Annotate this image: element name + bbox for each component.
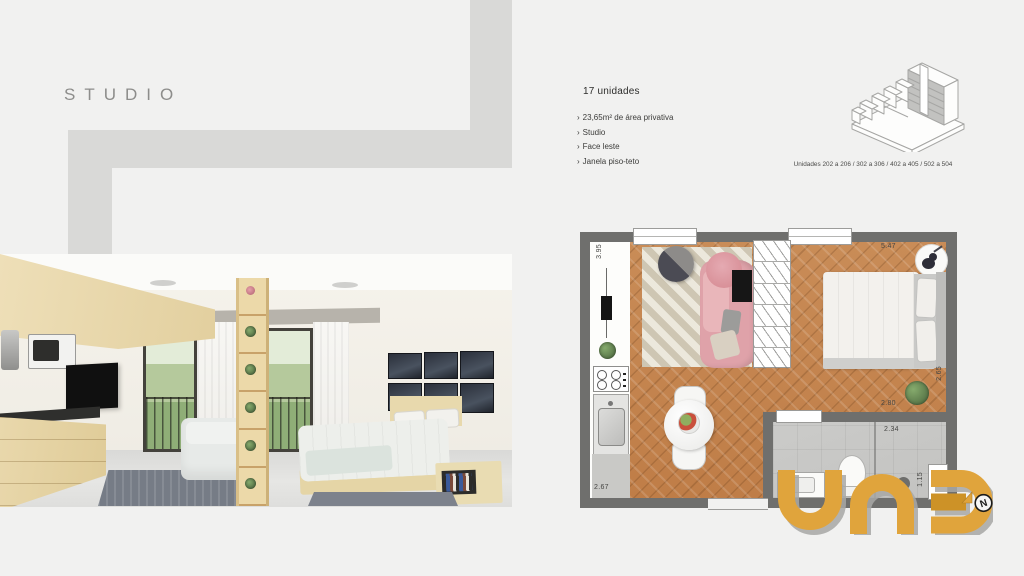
feature-list: ›23,65m² de área privativa ›Studio ›Face… bbox=[577, 114, 797, 166]
dim-bedroom-bottom: 2.80 bbox=[881, 400, 896, 407]
shelf-plant bbox=[245, 364, 256, 375]
coffee-maker bbox=[1, 330, 19, 370]
page-title: STUDIO bbox=[64, 85, 182, 105]
shelf-plant bbox=[245, 326, 256, 337]
bullet: › bbox=[577, 142, 580, 151]
bullet: › bbox=[577, 157, 580, 166]
shelf-plant bbox=[245, 478, 256, 489]
round-pouf bbox=[658, 246, 694, 282]
feature-item: ›Studio bbox=[577, 129, 797, 137]
north-compass: N bbox=[961, 489, 995, 516]
plan-pillow bbox=[915, 277, 938, 318]
guitar bbox=[929, 253, 937, 261]
wall-art bbox=[460, 351, 494, 379]
closet-section bbox=[754, 262, 790, 284]
decorative-band-horizontal bbox=[68, 130, 512, 168]
kitchen-plant bbox=[599, 342, 616, 359]
wall-art bbox=[388, 353, 422, 379]
tv bbox=[66, 363, 118, 411]
guitar-neck bbox=[933, 245, 942, 252]
cooktop bbox=[593, 366, 629, 392]
plan-window bbox=[788, 228, 852, 245]
ceiling-light bbox=[332, 282, 358, 288]
wall-tv bbox=[601, 296, 612, 320]
plan-pillow bbox=[915, 319, 938, 362]
entry-door-opening bbox=[708, 498, 768, 510]
building-isometric-icon bbox=[846, 60, 970, 152]
bedroom-rug bbox=[308, 492, 458, 506]
closet-section bbox=[754, 241, 790, 262]
feature-item: ›Janela piso-teto bbox=[577, 158, 797, 166]
kitchen-sink bbox=[593, 394, 629, 456]
bedroom-plant bbox=[905, 381, 929, 405]
feature-window: Janela piso-teto bbox=[583, 157, 639, 166]
decorative-band-left bbox=[68, 168, 112, 255]
shelf-plant bbox=[245, 440, 256, 451]
bullet: › bbox=[577, 113, 580, 122]
microwave-window bbox=[33, 340, 59, 361]
dim-bedroom-right: 2.65 bbox=[936, 366, 943, 381]
window-glass-line bbox=[634, 236, 696, 237]
building-units-caption: Unidades 202 a 206 / 302 a 306 / 402 a 4… bbox=[777, 161, 969, 168]
feature-area: 23,65m² de área privativa bbox=[583, 113, 674, 122]
wall-left bbox=[580, 232, 590, 508]
dim-bedroom-top: 5.47 bbox=[881, 243, 896, 250]
units-count: 17 unidades bbox=[583, 86, 797, 97]
shelf-plant bbox=[245, 402, 256, 413]
microwave bbox=[28, 334, 76, 369]
plan-window bbox=[633, 228, 697, 245]
wall-art bbox=[424, 352, 458, 379]
feature-type: Studio bbox=[583, 128, 606, 137]
wall-art bbox=[460, 383, 494, 413]
headboard-plan bbox=[936, 272, 946, 368]
flower bbox=[246, 286, 255, 295]
bed bbox=[823, 272, 919, 368]
book-spines bbox=[446, 473, 473, 492]
unit-info: 17 unidades ›23,65m² de área privativa ›… bbox=[577, 86, 797, 172]
closet-section bbox=[754, 348, 790, 369]
decorative-band-top bbox=[470, 0, 512, 130]
bathroom-wall-left bbox=[763, 412, 773, 498]
burner bbox=[597, 380, 607, 390]
closet-section bbox=[754, 284, 790, 305]
bookshelf-cell bbox=[442, 470, 477, 495]
bathroom-door bbox=[776, 410, 822, 423]
sink-basin bbox=[598, 408, 625, 446]
feature-face: Face leste bbox=[583, 142, 620, 151]
closet-section bbox=[754, 327, 790, 348]
tv-panel bbox=[732, 270, 752, 302]
interior-photo bbox=[0, 254, 512, 507]
window-glass-line bbox=[789, 236, 851, 237]
fruit-bowl bbox=[678, 412, 700, 434]
closet-section bbox=[754, 305, 790, 327]
burner bbox=[611, 380, 621, 390]
closet bbox=[753, 240, 791, 368]
burner bbox=[611, 370, 621, 380]
dim-bathroom: 2.34 bbox=[884, 426, 899, 433]
dim-living-left: 3.95 bbox=[596, 244, 603, 259]
faucet bbox=[608, 401, 613, 406]
kitchen-counter bbox=[592, 454, 630, 498]
feature-item: ›Face leste bbox=[577, 143, 797, 151]
bullet: › bbox=[577, 128, 580, 137]
dining-table bbox=[664, 400, 714, 450]
knobs bbox=[623, 371, 626, 387]
brochure-page: STUDIO 17 unidades ›23,65m² de área priv… bbox=[0, 0, 1024, 576]
burner bbox=[597, 370, 607, 380]
feature-item: ›23,65m² de área privativa bbox=[577, 114, 797, 122]
dim-kitchen: 2.67 bbox=[594, 484, 609, 491]
ceiling-light bbox=[150, 280, 176, 286]
compass-arrow bbox=[962, 492, 972, 503]
sofa-cushion bbox=[186, 422, 241, 444]
plant-shelf-column bbox=[236, 278, 269, 506]
